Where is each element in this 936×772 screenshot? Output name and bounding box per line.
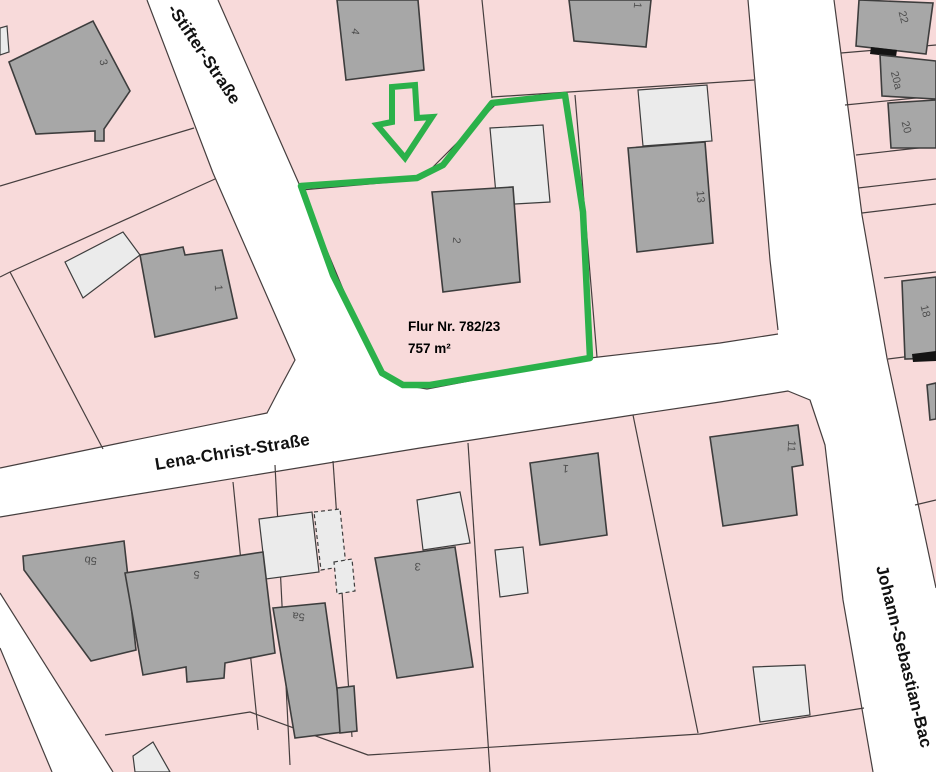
building-4 bbox=[337, 0, 424, 80]
building-22 bbox=[856, 0, 933, 54]
outbuilding bbox=[259, 512, 319, 579]
outbuilding-dashed bbox=[334, 559, 355, 594]
house-number: 1 bbox=[562, 462, 569, 474]
outbuilding bbox=[417, 492, 470, 550]
house-number: 1 bbox=[212, 284, 224, 291]
outbuilding bbox=[0, 26, 9, 55]
parcel-area-label: 757 m² bbox=[408, 341, 451, 356]
house-number: 1 bbox=[631, 2, 643, 9]
house-number: 11 bbox=[785, 440, 798, 452]
parcel-id-label: Flur Nr. 782/23 bbox=[408, 319, 501, 334]
outbuilding bbox=[753, 665, 810, 722]
house-number: 2 bbox=[450, 237, 463, 244]
building-20a bbox=[880, 55, 936, 99]
building-5a-annex bbox=[337, 686, 357, 733]
house-number: 13 bbox=[693, 190, 706, 203]
cadastral-map[interactable]: -Stifter-Straße Lena-Christ-Straße Johan… bbox=[0, 0, 936, 772]
outbuilding bbox=[495, 547, 528, 597]
outbuilding bbox=[638, 85, 712, 146]
building-18 bbox=[902, 277, 936, 359]
map-canvas: -Stifter-Straße Lena-Christ-Straße Johan… bbox=[0, 0, 936, 772]
building-2-highlight-parcel bbox=[432, 187, 520, 292]
house-number: 3 bbox=[414, 560, 421, 572]
house-number: 5b bbox=[84, 553, 97, 566]
